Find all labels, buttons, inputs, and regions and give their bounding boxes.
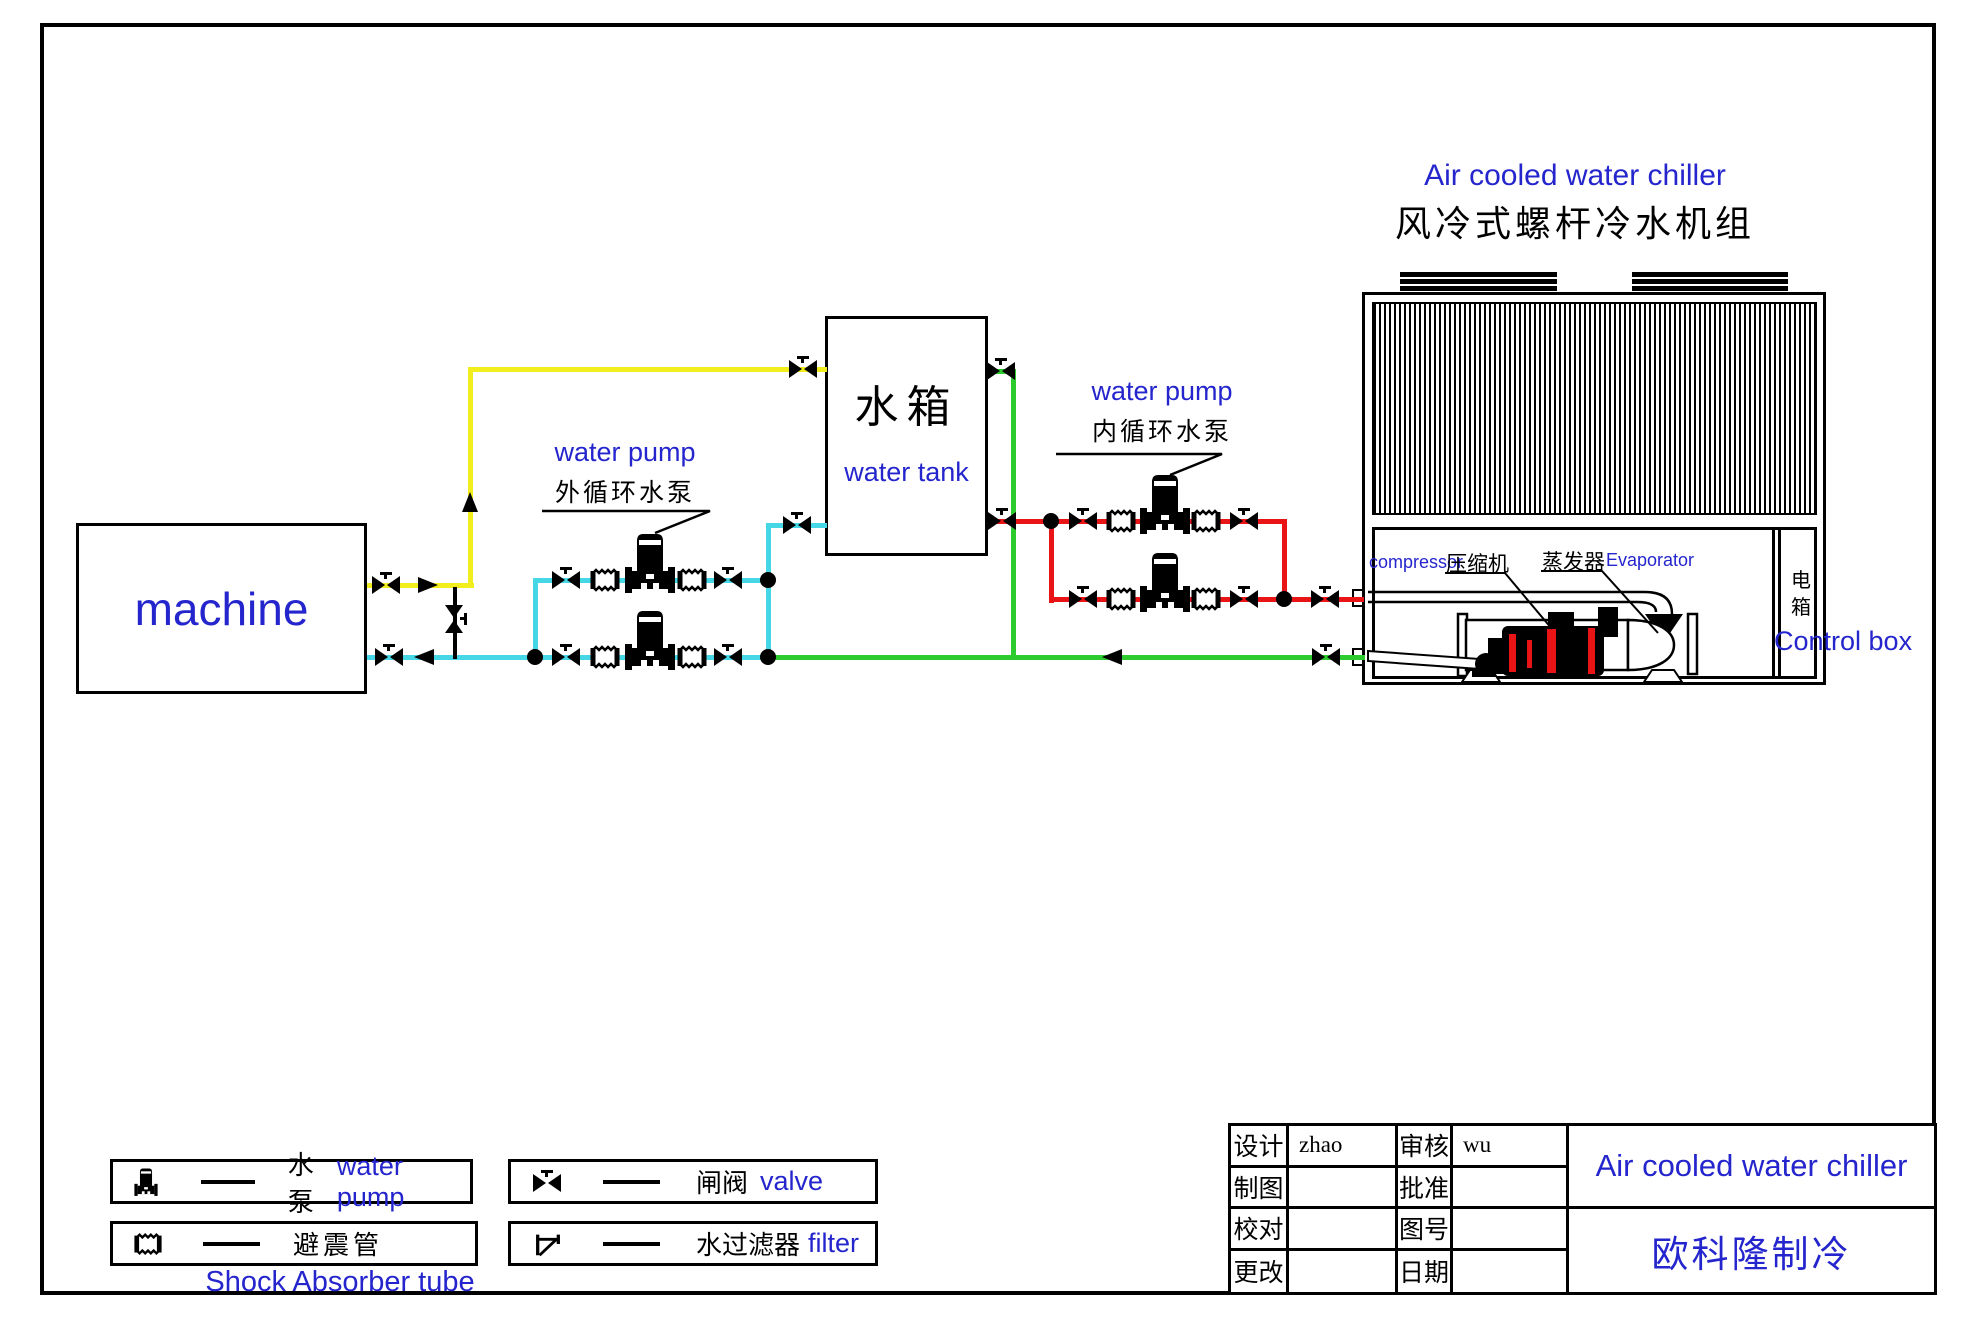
junction-dot: [1043, 513, 1059, 529]
tb-value: [1453, 1168, 1569, 1210]
pipe-to-tank-yellow: [468, 367, 827, 372]
legend-line-sample: [203, 1242, 260, 1246]
tb-label: 校对: [1231, 1209, 1289, 1251]
valve-icon: [552, 567, 580, 591]
tb-label: 更改: [1231, 1251, 1289, 1293]
valve-icon: [1230, 586, 1258, 610]
pipe-branch-left-cyan: [533, 580, 538, 659]
tb-label: 设计: [1231, 1126, 1289, 1168]
valve-icon: [1069, 508, 1097, 532]
junction-dot: [760, 572, 776, 588]
legend-item-valve: 闸阀 valve: [508, 1159, 878, 1204]
shock-absorber-icon: [676, 568, 708, 592]
flow-arrow-icon: [418, 577, 438, 593]
tb-value: [1453, 1209, 1569, 1251]
pipe-branch-left-red: [1049, 519, 1054, 603]
pipe-branch-right-cyan: [766, 523, 771, 659]
legend-line-sample: [201, 1180, 255, 1184]
tb-value: wu: [1453, 1126, 1569, 1168]
legend-label-zh: 避震管: [293, 1225, 383, 1262]
tb-value: [1289, 1168, 1398, 1210]
valve-icon: [443, 605, 467, 633]
shock-absorber-icon: [589, 645, 621, 669]
pump-icon: [622, 531, 678, 595]
pipe-chilled-return-green: [770, 655, 1365, 660]
tb-company: 欧科隆制冷: [1652, 1224, 1852, 1278]
legend-label-en: filter: [808, 1228, 859, 1259]
valve-icon: [714, 567, 742, 591]
valve-icon: [1311, 586, 1339, 610]
shock-absorber-icon: [1190, 587, 1222, 611]
tb-label: 审核: [1398, 1126, 1453, 1168]
filter-icon: [533, 1230, 563, 1258]
legend-label-zh: 水过滤器: [696, 1225, 800, 1262]
valve-icon: [988, 508, 1016, 532]
junction-dot: [527, 649, 543, 665]
tb-product-cell: Air cooled water chiller: [1569, 1126, 1934, 1209]
valve-icon: [1069, 586, 1097, 610]
tb-company-cell: 欧科隆制冷: [1569, 1209, 1934, 1292]
tb-product: Air cooled water chiller: [1596, 1148, 1908, 1184]
legend-line-sample: [603, 1180, 660, 1184]
valve-icon: [533, 1170, 561, 1194]
tb-value: zhao: [1289, 1126, 1398, 1168]
pump-icon: [1137, 550, 1193, 614]
shock-absorber-icon: [1190, 509, 1222, 533]
legend-label-zh: 水泵: [288, 1145, 337, 1219]
legend-item-water-pump: 水泵 water pump: [110, 1159, 473, 1204]
valve-icon: [1312, 644, 1340, 668]
shock-absorber-icon: [133, 1232, 163, 1256]
shock-absorber-icon: [1105, 587, 1137, 611]
legend-label-en: valve: [760, 1166, 823, 1197]
schematic-page: Air cooled water chiller 风冷式螺杆冷水机组 machi…: [0, 0, 1965, 1323]
tb-label: 图号: [1398, 1209, 1453, 1251]
valve-icon: [987, 358, 1015, 382]
valve-icon: [552, 644, 580, 668]
junction-dot: [1276, 591, 1292, 607]
legend-item-filter: 水过滤器 filter: [508, 1221, 878, 1266]
tb-value: [1453, 1251, 1569, 1293]
junction-dot: [760, 649, 776, 665]
tb-value: [1289, 1251, 1398, 1293]
tb-value: [1289, 1209, 1398, 1251]
legend-label-zh: 闸阀: [696, 1163, 748, 1200]
valve-icon: [789, 356, 817, 380]
flow-arrow-icon: [462, 492, 478, 512]
legend-caption-shock-absorber: Shock Absorber tube: [180, 1266, 500, 1299]
legend-item-shock-absorber: 避震管: [110, 1221, 478, 1266]
pump-icon: [133, 1166, 159, 1198]
shock-absorber-icon: [676, 645, 708, 669]
legend-label-en: water pump: [337, 1151, 470, 1213]
tb-label: 制图: [1231, 1168, 1289, 1210]
pipe-riser-yellow: [468, 367, 473, 588]
pump-icon: [622, 608, 678, 672]
title-block: 设计 zhao 审核 wu Air cooled water chiller 制…: [1228, 1123, 1937, 1295]
valve-icon: [372, 572, 400, 596]
valve-icon: [375, 644, 403, 668]
flow-arrow-icon: [414, 649, 434, 665]
pump-icon: [1137, 472, 1193, 536]
flow-arrow-icon: [1102, 649, 1122, 665]
valve-icon: [714, 644, 742, 668]
shock-absorber-icon: [589, 568, 621, 592]
valve-icon: [783, 512, 811, 536]
tb-label: 日期: [1398, 1251, 1453, 1293]
shock-absorber-icon: [1105, 509, 1137, 533]
legend-line-sample: [603, 1242, 660, 1246]
tb-label: 批准: [1398, 1168, 1453, 1210]
valve-icon: [1230, 508, 1258, 532]
